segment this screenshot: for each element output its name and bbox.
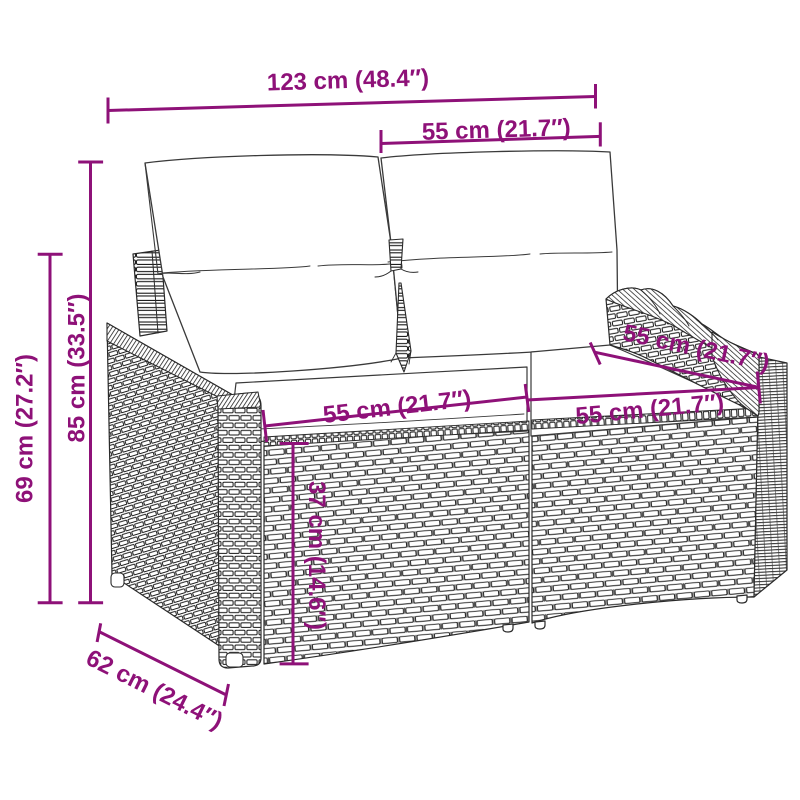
svg-text:123 cm (48.4″): 123 cm (48.4″) xyxy=(266,64,429,96)
svg-text:69 cm (27.2″): 69 cm (27.2″) xyxy=(12,354,39,503)
svg-text:37 cm (14.6″): 37 cm (14.6″) xyxy=(303,481,330,630)
svg-text:55 cm (21.7″): 55 cm (21.7″) xyxy=(421,114,571,146)
svg-text:85 cm (33.5″): 85 cm (33.5″) xyxy=(64,294,91,443)
